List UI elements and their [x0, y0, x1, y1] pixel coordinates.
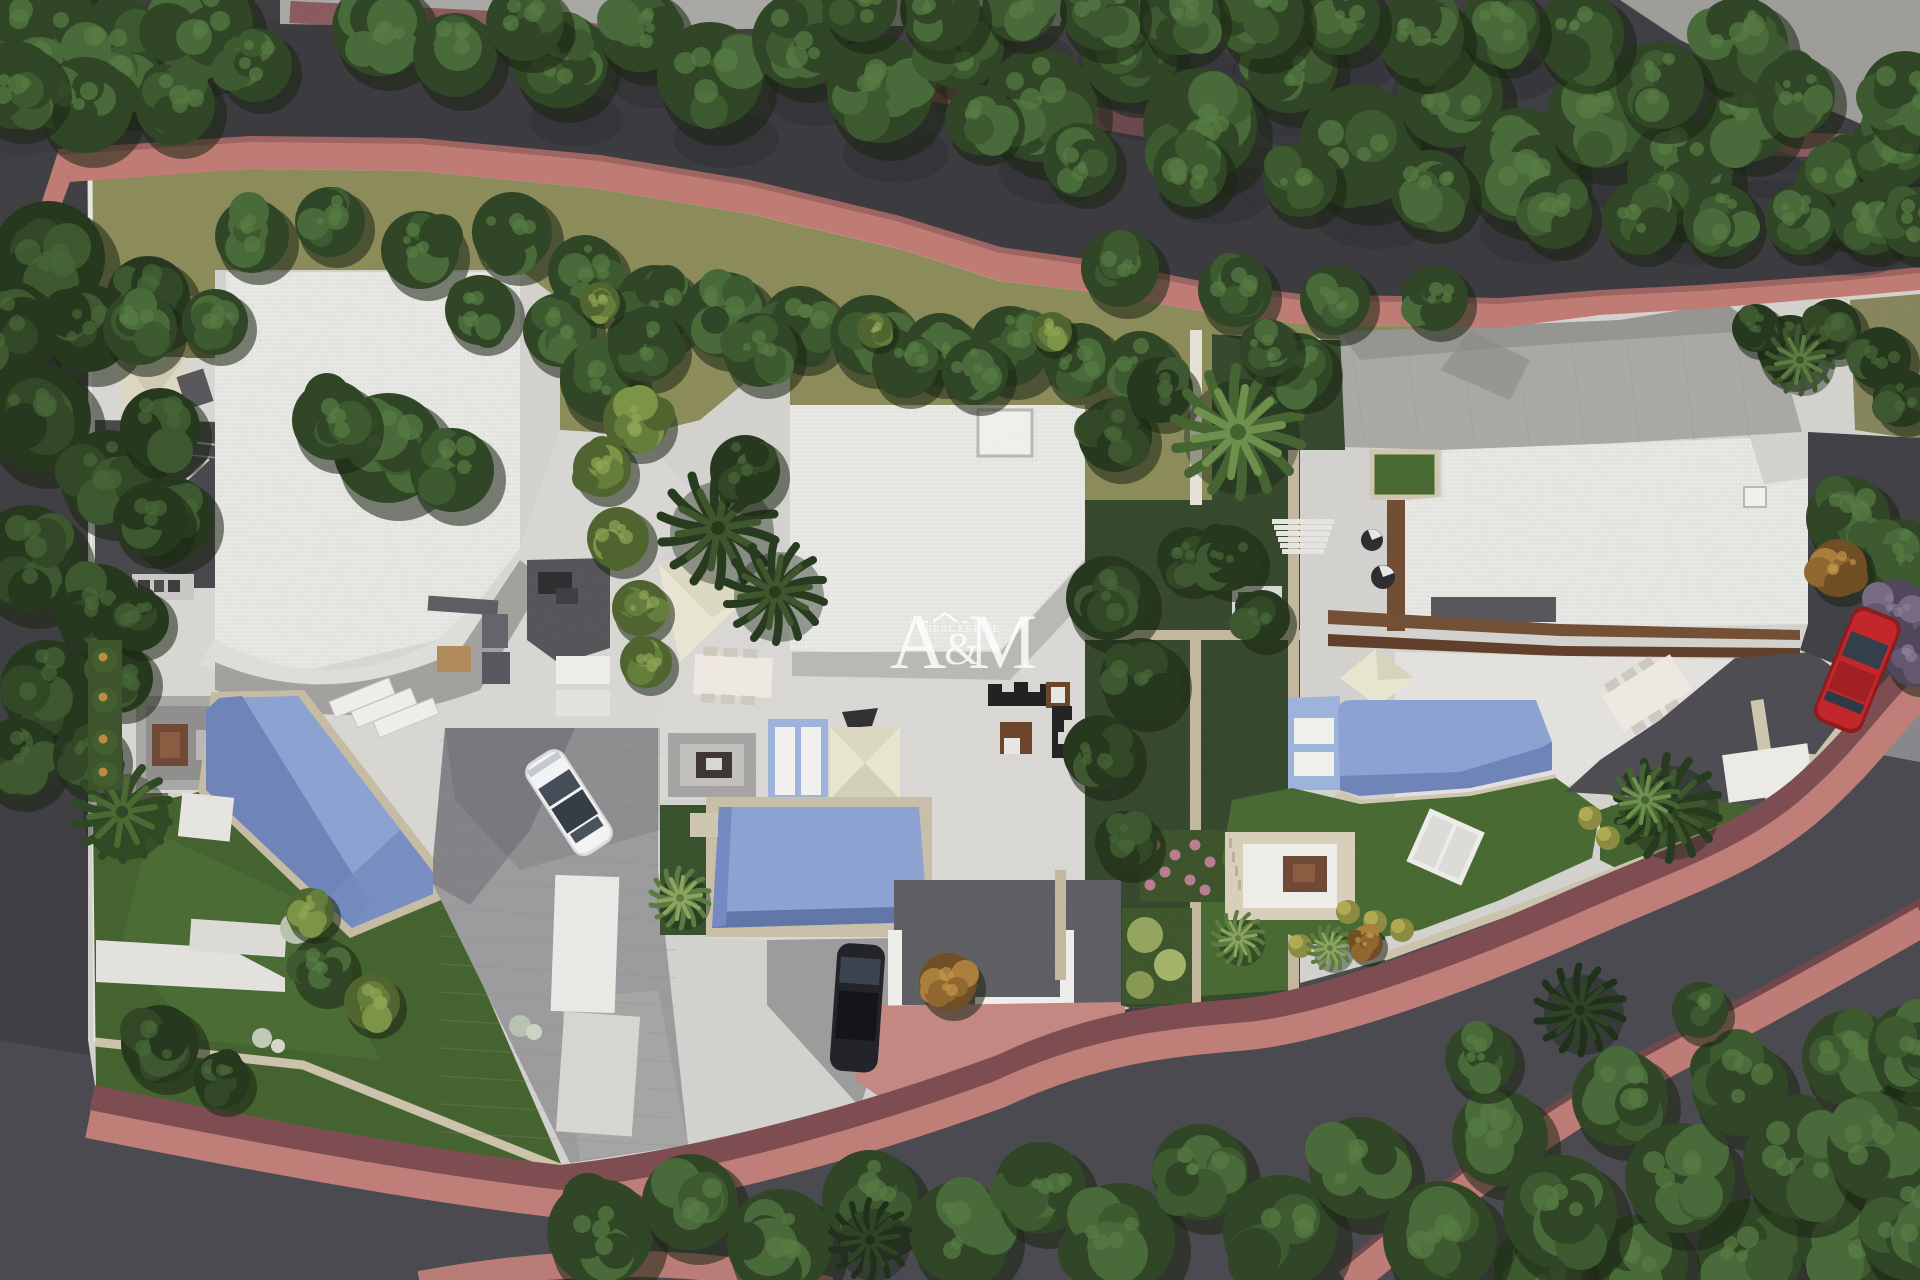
- svg-text:A: A: [890, 598, 946, 685]
- svg-text:M: M: [968, 598, 1037, 685]
